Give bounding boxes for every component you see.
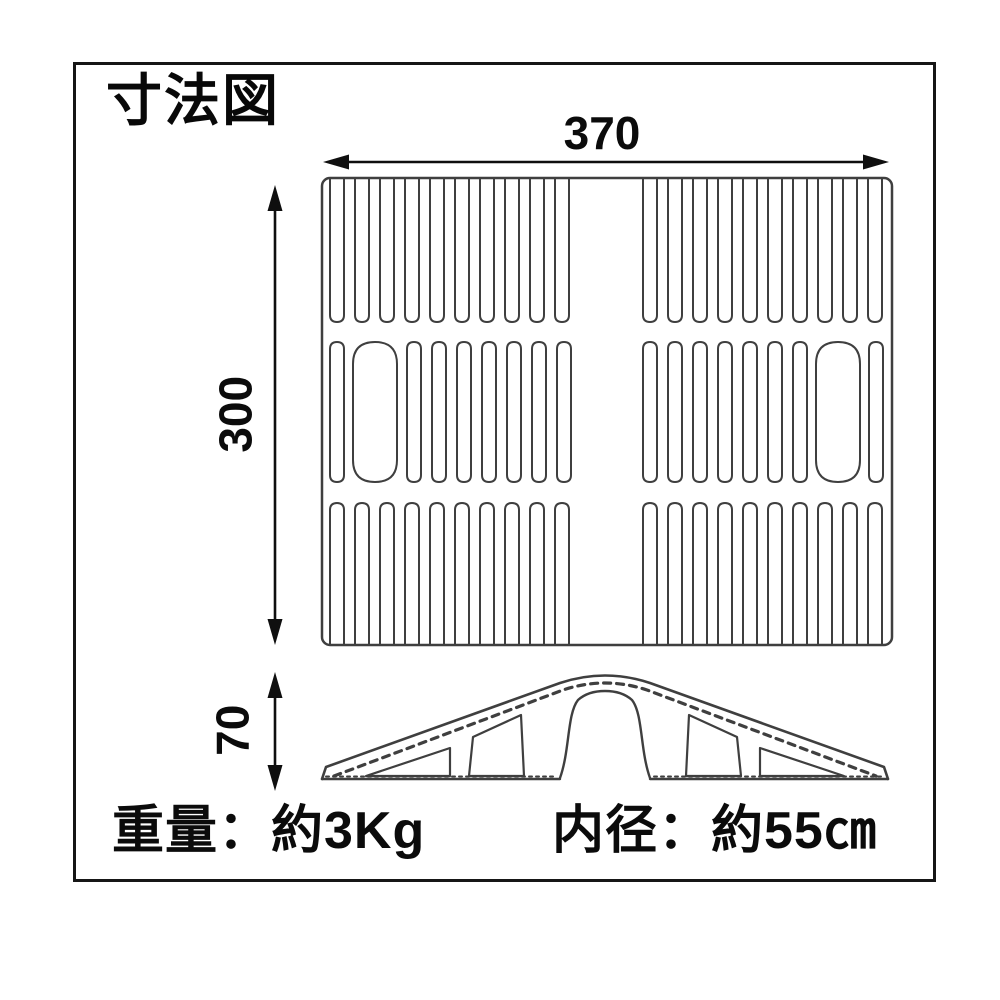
vent-slot <box>507 342 521 482</box>
slope-hatch <box>334 683 876 776</box>
vent-slot <box>380 178 394 322</box>
vent-slot <box>818 178 832 322</box>
vent-slot <box>405 503 419 645</box>
vent-slot <box>555 178 569 322</box>
handle-slot <box>816 342 860 482</box>
vent-slot <box>482 342 496 482</box>
vent-slot <box>743 503 757 645</box>
side-view <box>322 676 888 780</box>
vent-slot <box>530 178 544 322</box>
vent-slot <box>743 342 757 482</box>
vent-slot <box>718 342 732 482</box>
vent-slot <box>455 178 469 322</box>
vent-slot <box>693 503 707 645</box>
vent-slot <box>868 503 882 645</box>
vent-slot <box>457 342 471 482</box>
vent-slot <box>668 503 682 645</box>
cutout-left-outer <box>366 748 450 776</box>
dim-side-height-label: 70 <box>208 650 259 810</box>
vent-slot <box>430 178 444 322</box>
vent-slot <box>643 342 657 482</box>
vent-slot <box>643 178 657 322</box>
vent-slot <box>718 503 732 645</box>
vent-slot <box>530 503 544 645</box>
vent-slot <box>768 178 782 322</box>
vent-slot <box>330 503 344 645</box>
vent-slot <box>643 503 657 645</box>
arch-tunnel <box>560 691 650 778</box>
dim-height-label: 300 <box>211 334 262 494</box>
vent-slot <box>330 178 344 322</box>
vent-slot <box>380 503 394 645</box>
vent-slot <box>718 178 732 322</box>
vent-slot <box>355 503 369 645</box>
vent-slot <box>480 178 494 322</box>
vent-slot <box>768 342 782 482</box>
spec-inner-diameter: 内径：約55㎝ <box>552 803 877 860</box>
vent-slot <box>818 503 832 645</box>
top-view <box>322 178 892 645</box>
vent-slot <box>557 342 571 482</box>
dimension-arrows <box>268 155 890 792</box>
vent-slot <box>693 342 707 482</box>
vent-slot <box>405 178 419 322</box>
vent-slot <box>768 503 782 645</box>
vent-slot <box>505 503 519 645</box>
cutout-right-inner <box>686 715 741 776</box>
vent-slot <box>480 503 494 645</box>
vent-slot <box>668 342 682 482</box>
vent-slot <box>843 503 857 645</box>
vent-slot <box>355 178 369 322</box>
dim-width-label: 370 <box>522 108 682 159</box>
spec-weight: 重量：約3Kg <box>112 803 425 860</box>
vent-slot <box>868 178 882 322</box>
vent-slot <box>555 503 569 645</box>
vent-slot <box>432 342 446 482</box>
vent-slot <box>793 503 807 645</box>
handle-slot <box>353 342 397 482</box>
vent-slot <box>430 503 444 645</box>
height-arrow <box>268 185 283 645</box>
vent-slot <box>455 503 469 645</box>
vent-slot <box>793 178 807 322</box>
vent-slot <box>532 342 546 482</box>
vent-slot <box>693 178 707 322</box>
vent-slot <box>869 342 883 482</box>
vent-slot <box>843 178 857 322</box>
vent-slot <box>668 178 682 322</box>
cutout-left-inner <box>469 715 524 776</box>
side-height-arrow <box>268 672 283 791</box>
vent-slot <box>793 342 807 482</box>
cutout-right-outer <box>760 748 844 776</box>
vent-slot <box>407 342 421 482</box>
diagram-title: 寸法図 <box>106 70 280 132</box>
vent-slot <box>743 178 757 322</box>
vent-slot <box>330 342 344 482</box>
vent-slot <box>505 178 519 322</box>
